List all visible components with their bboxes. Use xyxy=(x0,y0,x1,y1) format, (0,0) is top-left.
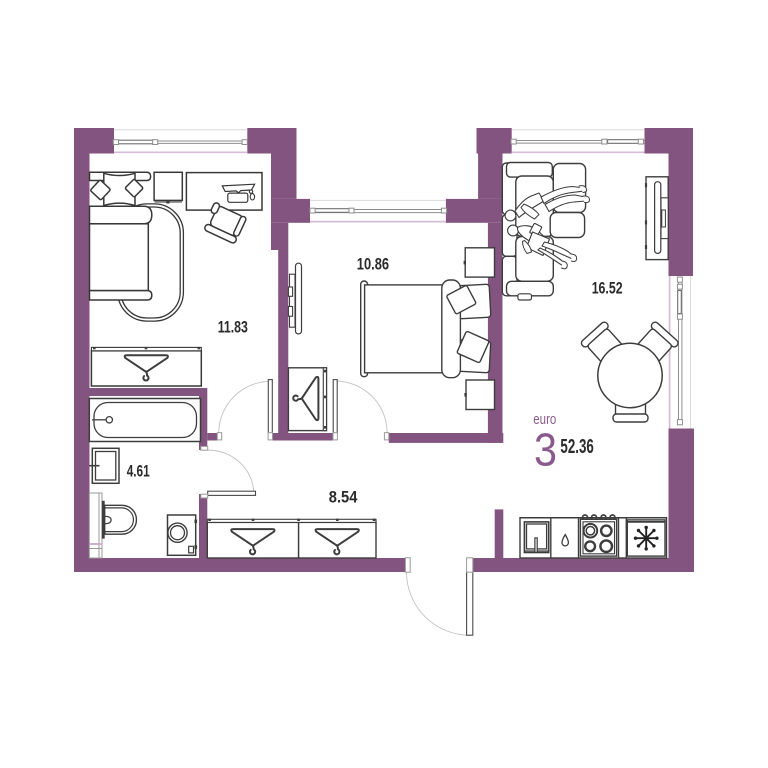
svg-text:10.86: 10.86 xyxy=(357,255,389,273)
svg-text:4.61: 4.61 xyxy=(127,463,150,481)
svg-text:16.52: 16.52 xyxy=(592,280,623,298)
svg-text:11.83: 11.83 xyxy=(218,318,248,336)
svg-text:8.54: 8.54 xyxy=(329,488,358,506)
svg-text:52.36: 52.36 xyxy=(560,436,593,458)
svg-text:3: 3 xyxy=(534,423,557,475)
